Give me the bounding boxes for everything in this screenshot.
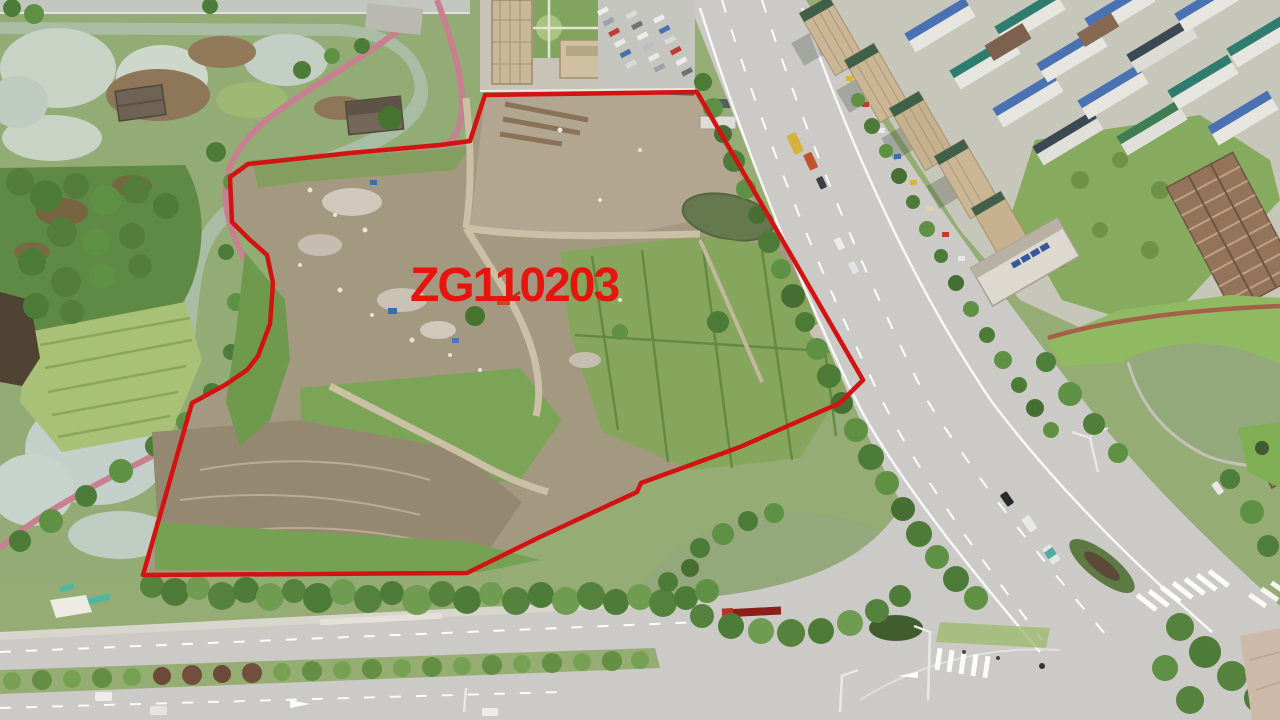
dirt-mound bbox=[188, 36, 256, 68]
low-building-roof bbox=[566, 46, 602, 56]
pond bbox=[244, 34, 328, 86]
old-brick-building bbox=[115, 85, 166, 121]
aerial-scene: ZG110203 bbox=[0, 0, 1280, 720]
pedestrian bbox=[962, 650, 966, 654]
tree-icon bbox=[707, 311, 729, 333]
parcel-label: ZG110203 bbox=[410, 259, 618, 312]
car bbox=[95, 692, 112, 701]
lone-tree bbox=[378, 106, 402, 130]
pedestrian bbox=[996, 656, 1000, 660]
car bbox=[150, 706, 167, 715]
top-compound bbox=[480, 0, 695, 92]
motorbike bbox=[1039, 663, 1045, 669]
car bbox=[482, 708, 498, 716]
tree-icon bbox=[612, 324, 628, 340]
apartment-tower bbox=[492, 0, 532, 84]
bush bbox=[1255, 441, 1269, 455]
aerial-photo-of-land-parcel: ZG110203 bbox=[0, 0, 1280, 720]
